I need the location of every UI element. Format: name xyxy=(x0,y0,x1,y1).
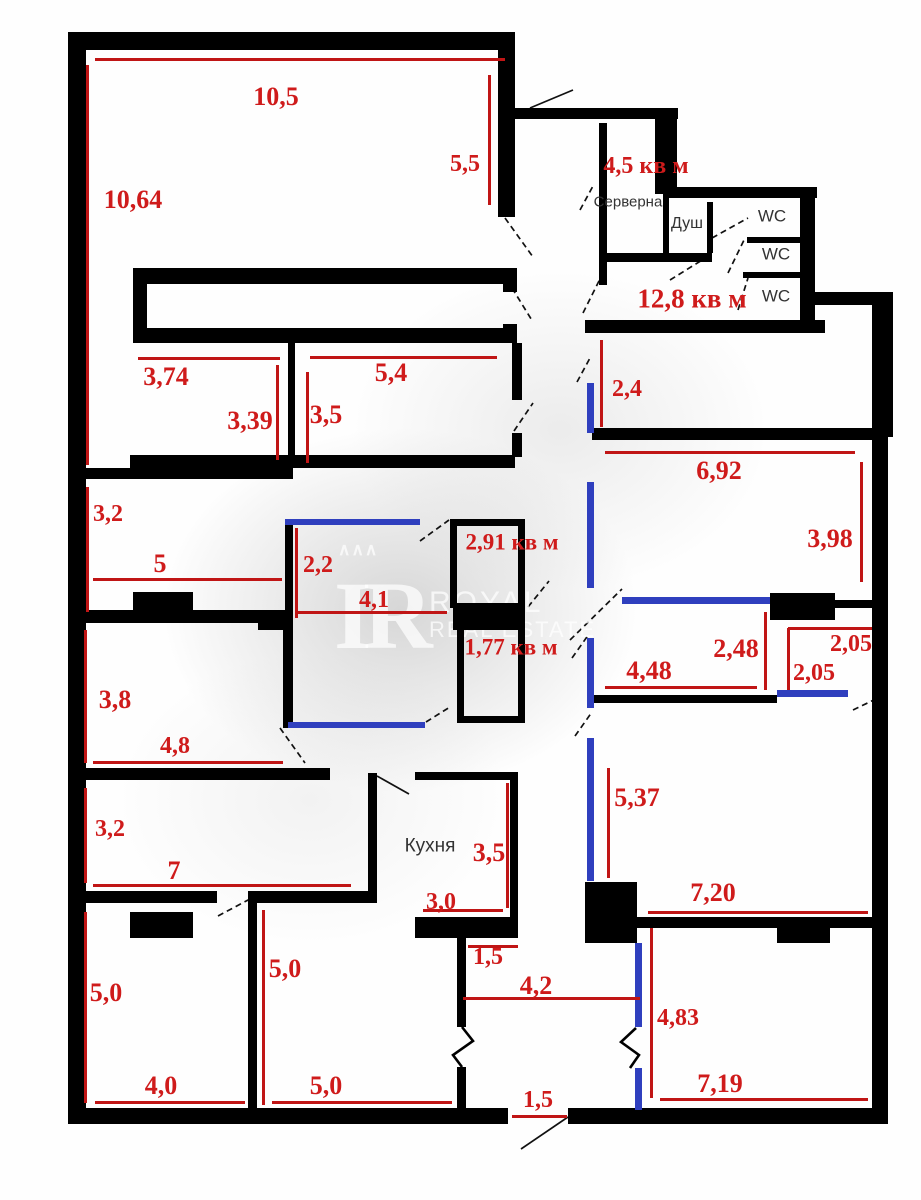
door-swing-line xyxy=(218,899,250,916)
dimension-label: 5 xyxy=(154,551,167,577)
dimension-line xyxy=(764,612,767,690)
wall-segment xyxy=(503,268,517,292)
dimension-label: 10,5 xyxy=(253,84,299,110)
pillar-block xyxy=(777,922,830,943)
area-label: 1,77 кв м xyxy=(464,636,557,659)
wall-segment xyxy=(283,617,293,728)
wall-segment xyxy=(457,938,466,1027)
dimension-line xyxy=(860,462,863,582)
dimension-label: 2,48 xyxy=(713,636,759,662)
door-swing-line xyxy=(514,403,533,431)
door-swing-line xyxy=(521,1117,568,1149)
dimension-label: 5,5 xyxy=(450,152,480,176)
partition-line xyxy=(587,638,594,708)
wall-segment xyxy=(130,455,515,468)
wall-segment xyxy=(747,237,800,243)
wall-segment xyxy=(68,32,513,50)
door-swing-line xyxy=(420,520,449,541)
wall-segment xyxy=(637,917,875,928)
dimension-label: 3,8 xyxy=(99,687,132,713)
dimension-label: 5,0 xyxy=(90,980,123,1006)
dimension-label: 1,5 xyxy=(473,945,503,969)
dimension-label: 3,5 xyxy=(310,402,343,428)
door-swing-line xyxy=(377,776,409,794)
dimension-line xyxy=(295,528,298,618)
dimension-line xyxy=(93,884,351,887)
door-swing-line xyxy=(505,218,533,257)
area-label: 4,5 кв м xyxy=(603,154,688,178)
door-swing-line xyxy=(580,186,593,210)
dimension-label: 1,5 xyxy=(523,1088,553,1112)
wall-segment xyxy=(453,603,525,630)
wall-segment xyxy=(655,108,677,194)
dimension-line xyxy=(605,686,757,689)
dimension-line xyxy=(84,630,87,763)
door-swing-line xyxy=(426,707,450,722)
wall-segment xyxy=(663,198,669,253)
door-swing-line xyxy=(512,288,533,322)
dimension-line xyxy=(84,788,87,883)
wall-segment xyxy=(288,343,295,455)
wall-segment xyxy=(450,519,457,608)
partition-line xyxy=(635,1068,642,1110)
dimension-line xyxy=(276,365,279,460)
dimension-line xyxy=(272,1101,452,1104)
wall-segment xyxy=(743,272,800,278)
wall-segment xyxy=(457,716,525,723)
room-label: Душ xyxy=(671,216,703,232)
dimension-line xyxy=(86,65,89,465)
wall-segment xyxy=(68,1108,508,1124)
dimension-label: 2,4 xyxy=(612,377,642,401)
wall-segment xyxy=(415,917,518,938)
dimension-label: 3,0 xyxy=(426,890,456,914)
door-swing-line xyxy=(712,218,748,238)
dimension-label: 4,2 xyxy=(520,973,553,999)
dimension-label: 5,0 xyxy=(310,1073,343,1099)
wall-segment xyxy=(592,695,777,703)
dimension-line xyxy=(306,372,309,463)
door-swing-line xyxy=(728,238,745,273)
dimension-label: 7,19 xyxy=(697,1071,743,1097)
pillar-block xyxy=(770,593,835,620)
wall-segment xyxy=(450,519,525,526)
dimension-line xyxy=(86,487,89,612)
wall-segment xyxy=(815,292,893,305)
door-swing-line xyxy=(575,712,592,736)
room-label: WC xyxy=(758,208,786,225)
wall-segment xyxy=(707,202,713,253)
dimension-label: 3,2 xyxy=(93,502,123,526)
wall-segment xyxy=(835,600,877,608)
dimension-line xyxy=(787,628,790,690)
door-break-symbol xyxy=(453,1027,473,1067)
wall-segment xyxy=(512,343,522,400)
partition-line xyxy=(587,738,594,881)
dimension-label: 2,05 xyxy=(830,632,872,656)
dimension-line xyxy=(488,75,491,205)
wall-segment xyxy=(592,428,880,440)
pillar-block xyxy=(585,882,637,943)
dimension-label: 5,0 xyxy=(269,956,302,982)
wall-segment xyxy=(415,772,518,780)
dimension-label: 4,48 xyxy=(626,658,672,684)
wall-segment xyxy=(133,328,517,343)
floor-plan: ∧∧∧ IR ROYAL REAL ESTATE 10,510,645,52,4… xyxy=(0,0,921,1200)
dimension-label: 3,5 xyxy=(473,840,506,866)
door-break-symbol xyxy=(621,1028,639,1068)
dimension-line xyxy=(600,340,603,427)
partition-line xyxy=(587,383,594,433)
dimension-label: 5,37 xyxy=(614,785,660,811)
dimension-label: 7,20 xyxy=(690,880,736,906)
pillar-block xyxy=(133,592,193,615)
dimension-label: 4,0 xyxy=(145,1073,178,1099)
room-label: Кухня xyxy=(405,837,456,856)
watermark-logo: IR xyxy=(334,560,425,671)
dimension-label: 2,2 xyxy=(303,553,333,577)
wall-segment xyxy=(248,891,377,903)
dimension-line xyxy=(512,1115,567,1118)
wall-segment xyxy=(368,773,377,900)
dimension-line xyxy=(648,911,868,914)
door-swing-line xyxy=(577,358,590,382)
wall-segment xyxy=(585,320,825,333)
dimension-line xyxy=(788,627,872,630)
door-swing-line xyxy=(280,728,305,763)
wall-segment xyxy=(457,1067,466,1110)
partition-line xyxy=(635,943,642,1027)
partition-line xyxy=(288,722,425,728)
pillar-block xyxy=(130,912,193,938)
wall-segment xyxy=(285,520,293,620)
door-swing-line xyxy=(570,589,622,640)
dimension-line xyxy=(660,1098,868,1101)
room-label: WC xyxy=(762,246,790,263)
dimension-line xyxy=(95,1101,245,1104)
dimension-label: 3,98 xyxy=(807,526,853,552)
wall-segment xyxy=(800,187,815,333)
room-label: Серверна xyxy=(594,195,663,210)
dimension-line xyxy=(93,761,283,764)
dimension-label: 6,92 xyxy=(696,458,742,484)
wall-segment xyxy=(663,187,817,198)
partition-line xyxy=(777,690,848,697)
dimension-line xyxy=(138,357,280,360)
wall-segment xyxy=(512,433,522,457)
dimension-line xyxy=(84,912,87,1103)
dimension-line xyxy=(262,910,265,1105)
wall-segment xyxy=(510,780,518,917)
dimension-label: 3,2 xyxy=(95,817,125,841)
dimension-line xyxy=(506,783,509,908)
partition-line xyxy=(587,482,594,588)
wall-segment xyxy=(68,468,293,479)
dimension-label: 4,83 xyxy=(657,1006,699,1030)
dimension-label: 4,8 xyxy=(160,734,190,758)
watermark-crown-icon: ∧∧∧ xyxy=(338,540,378,560)
wall-segment xyxy=(248,900,257,1108)
wall-segment xyxy=(68,891,217,903)
wall-segment xyxy=(503,324,517,343)
dimension-line xyxy=(607,768,610,878)
wall-segment xyxy=(133,268,517,284)
dimension-label: 5,4 xyxy=(375,360,408,386)
dimension-label: 7 xyxy=(168,858,181,884)
wall-segment xyxy=(133,268,147,343)
area-label: 12,8 кв м xyxy=(637,286,746,313)
dimension-line xyxy=(605,451,855,454)
room-label: WC xyxy=(762,288,790,305)
wall-segment xyxy=(873,305,893,437)
wall-segment xyxy=(568,1108,888,1124)
dimension-label: 3,39 xyxy=(227,408,273,434)
dimension-line xyxy=(95,58,505,61)
dimension-label: 2,05 xyxy=(793,661,835,685)
wall-segment xyxy=(68,768,330,780)
dimension-label: 10,64 xyxy=(104,187,163,213)
partition-line xyxy=(622,597,770,604)
wall-segment xyxy=(599,253,712,262)
dimension-label: 3,74 xyxy=(143,364,189,390)
partition-line xyxy=(285,519,420,525)
dimension-line xyxy=(650,928,653,1098)
wall-segment xyxy=(457,628,464,723)
dimension-label: 4,1 xyxy=(359,588,389,612)
door-swing-line xyxy=(530,90,573,108)
dimension-line xyxy=(93,578,282,581)
wall-segment xyxy=(508,108,678,119)
area-label: 2,91 кв м xyxy=(465,531,558,554)
door-swing-line xyxy=(528,581,549,607)
